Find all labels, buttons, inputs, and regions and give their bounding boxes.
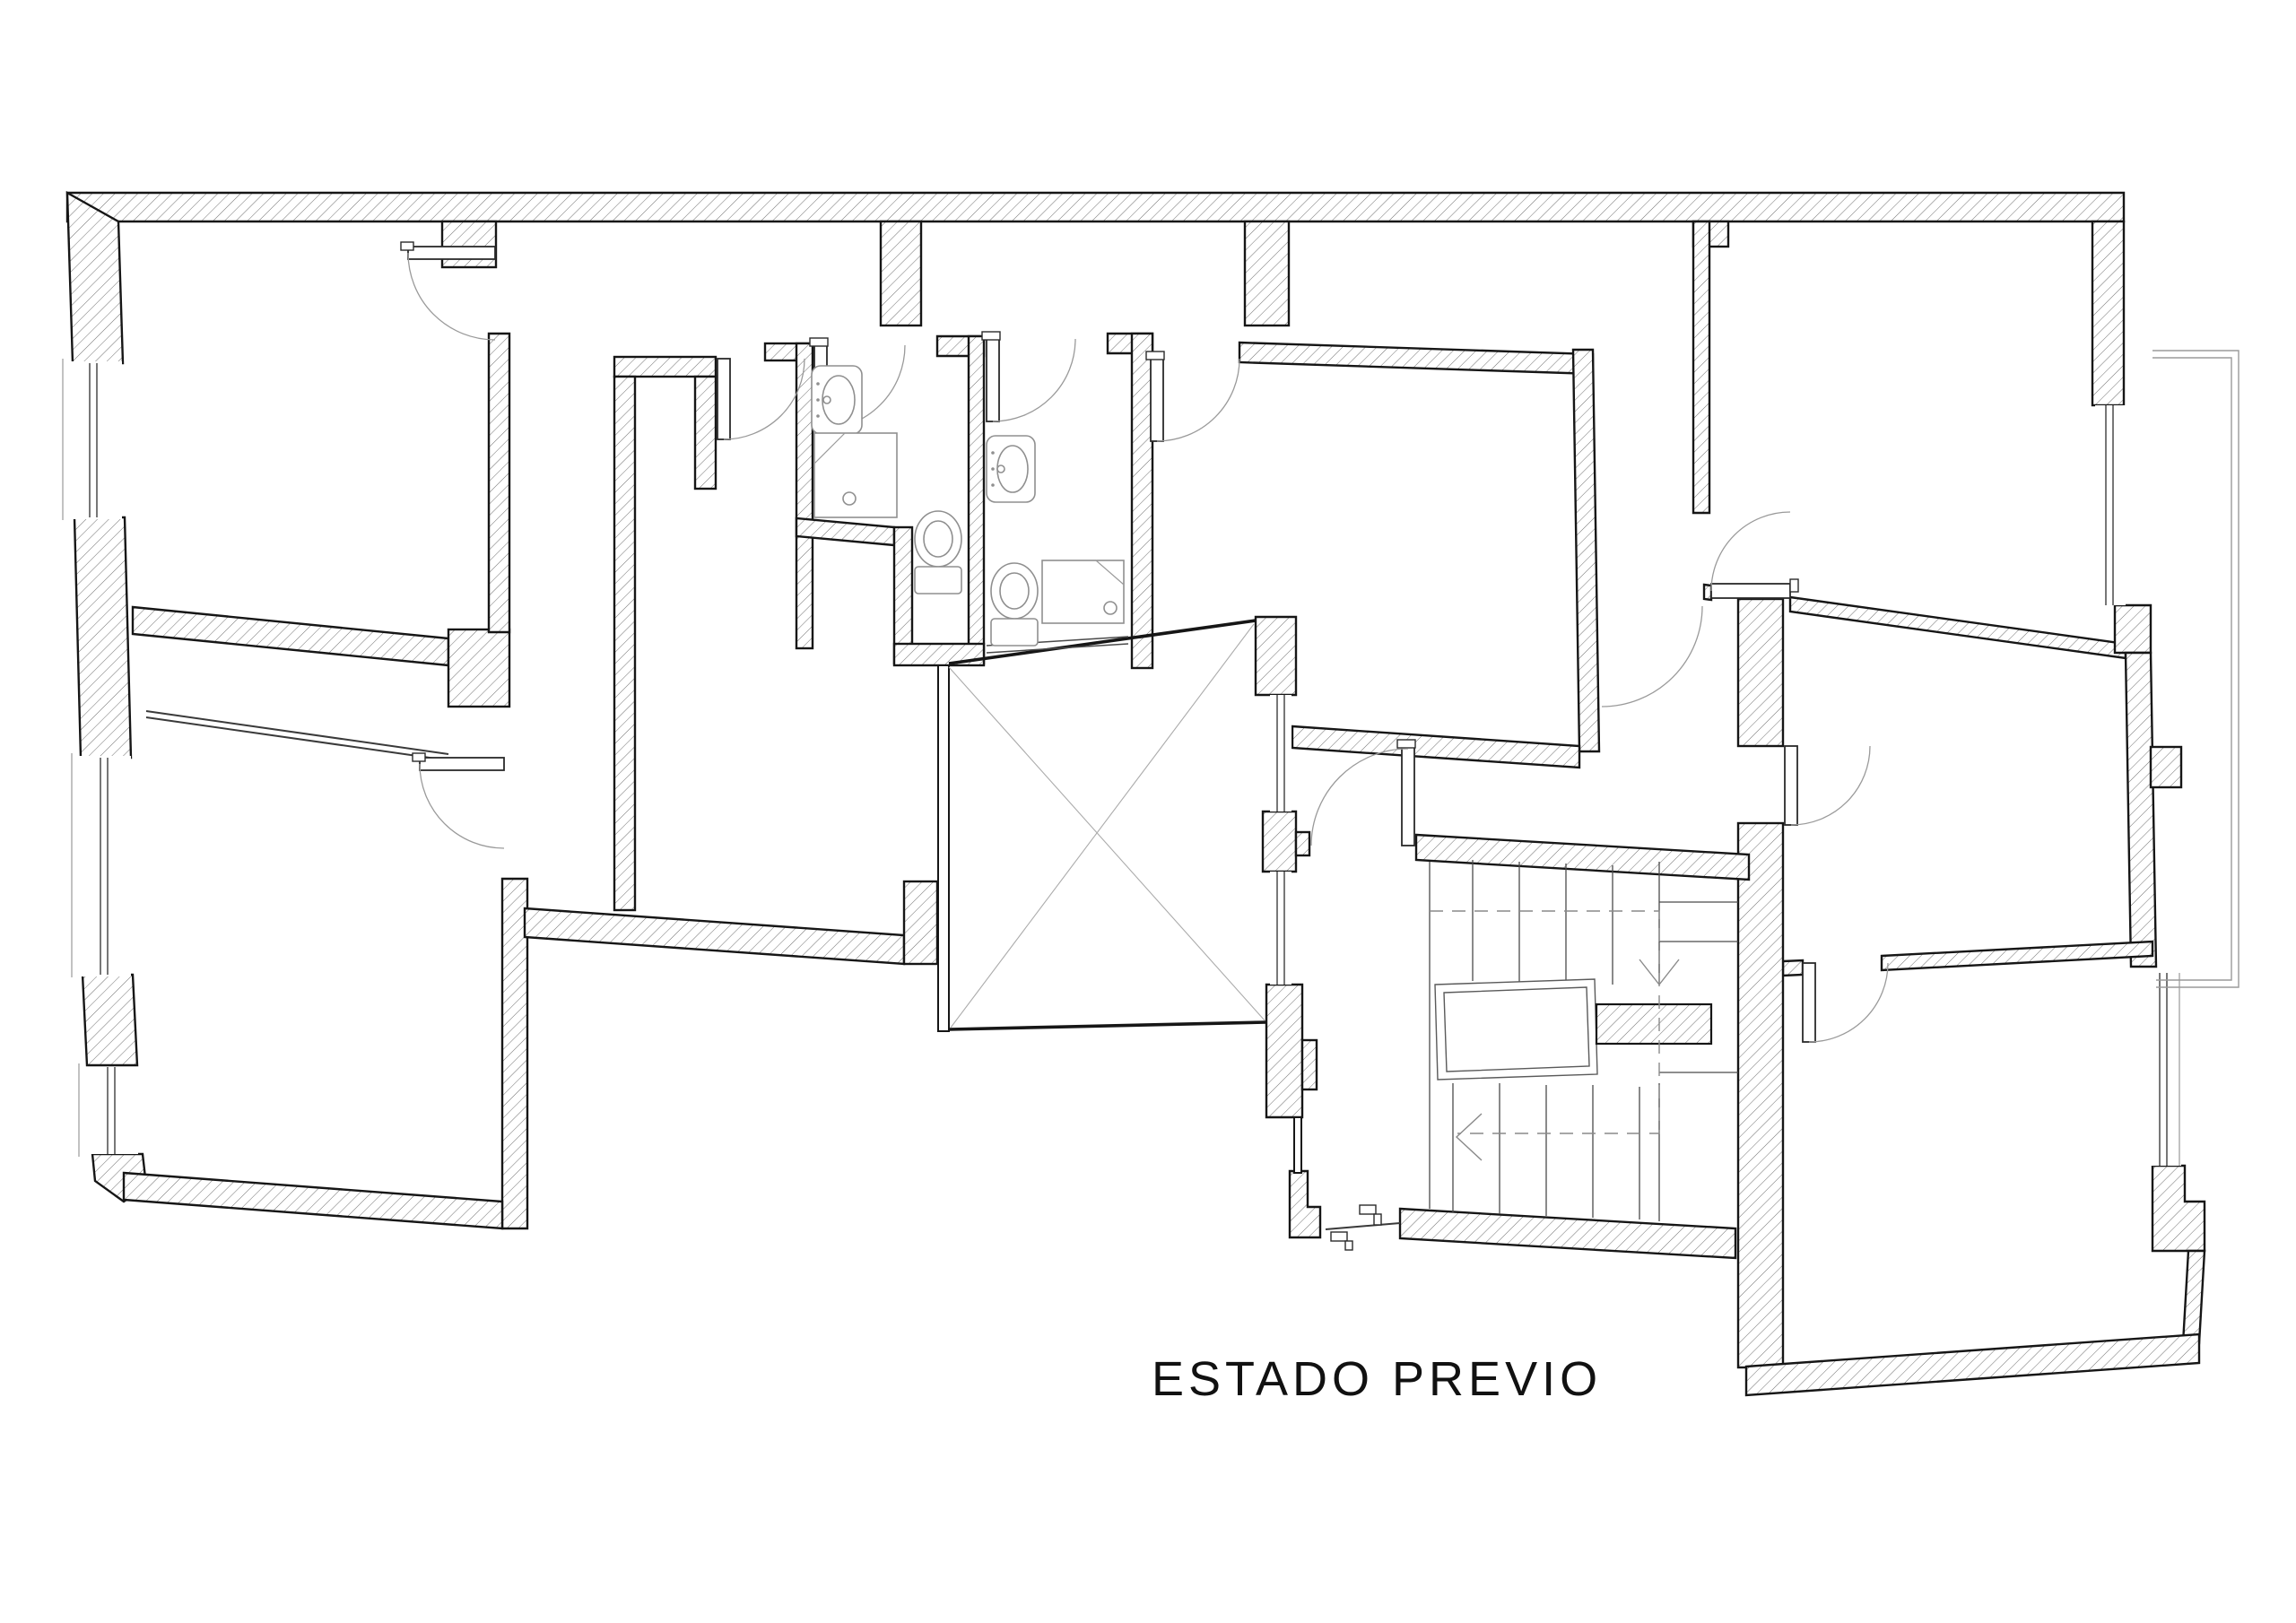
sink-symbol [987, 436, 1035, 502]
window-bottom-right-room [2151, 973, 2181, 1166]
window-top-right-room [2095, 405, 2126, 605]
sink-symbol [812, 366, 862, 434]
shower-tray-symbol [814, 433, 897, 517]
stair-void [1435, 979, 1597, 1080]
window-left-2 [72, 753, 131, 977]
drawing-sheet: ESTADO PREVIO [0, 0, 2296, 1623]
patio-west-wall [938, 665, 949, 1031]
floor-plan-drawing: ESTADO PREVIO [0, 0, 2296, 1623]
shower-tray-symbol [1042, 560, 1124, 623]
title-label: ESTADO PREVIO [1152, 1352, 1602, 1406]
pier [881, 221, 921, 325]
stair-mid-wall-stub [1596, 1004, 1711, 1044]
window-left-3 [79, 1063, 138, 1157]
window-patio-1 [1270, 695, 1291, 811]
toilet-symbol [915, 511, 961, 594]
toilet-symbol [991, 563, 1038, 646]
window-left-1 [63, 359, 122, 520]
window-patio-2 [1270, 872, 1291, 985]
pier [1245, 221, 1289, 325]
entry-hall-west-wall [1294, 1117, 1301, 1173]
